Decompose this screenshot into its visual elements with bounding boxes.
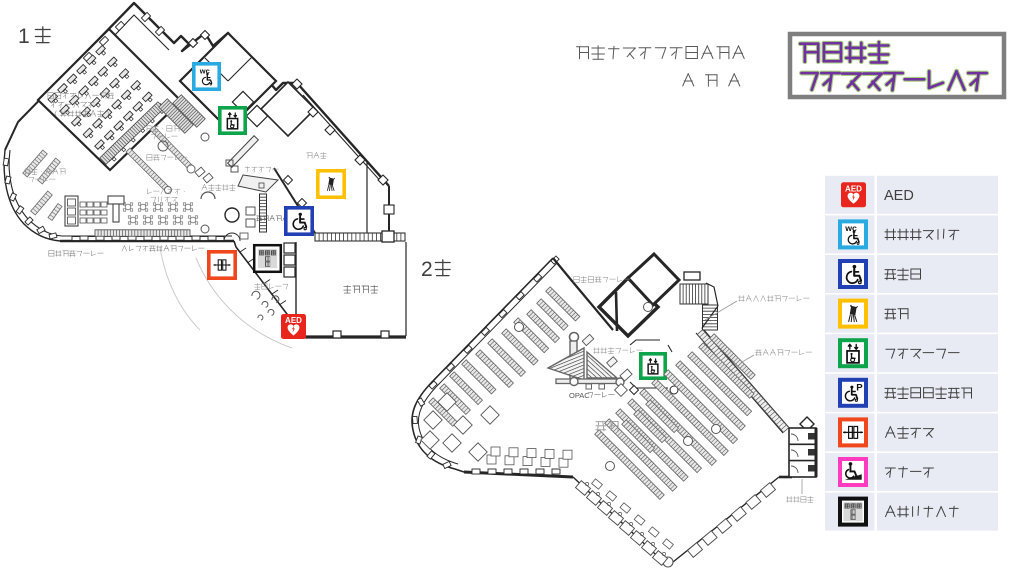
svg-text:2: 2 bbox=[421, 258, 433, 281]
svg-text:AED: AED bbox=[285, 316, 302, 325]
svg-text:AED: AED bbox=[845, 184, 862, 193]
svg-text:AED: AED bbox=[884, 188, 914, 204]
svg-text:P: P bbox=[856, 383, 863, 394]
svg-text:OPAC: OPAC bbox=[569, 391, 590, 400]
svg-text:1: 1 bbox=[18, 25, 30, 48]
